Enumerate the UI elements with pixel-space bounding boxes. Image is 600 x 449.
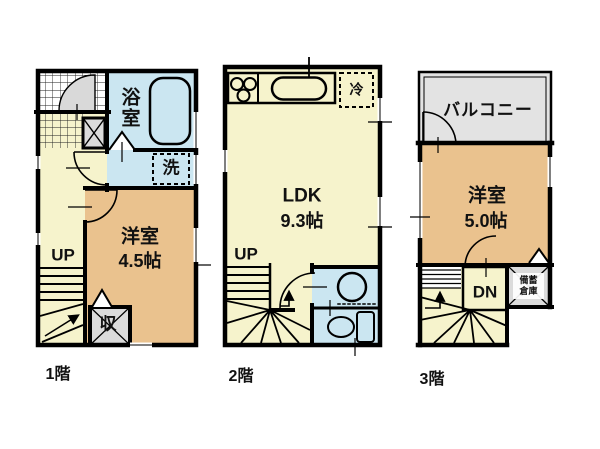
toilet-area [312, 308, 380, 345]
ldk-label: LDK [282, 187, 321, 208]
bedroom3-size-label: 5.0帖 [464, 212, 507, 232]
bedroom1-size-label: 4.5帖 [118, 252, 161, 272]
stairs-up-label-floor2: UP [234, 246, 258, 265]
storage-label: 備蓄 倉庫 [519, 275, 537, 297]
storage-label-line2: 倉庫 [519, 286, 537, 296]
ldk-size-label: 9.3帖 [280, 212, 323, 232]
floor2-label: 2階 [229, 368, 254, 386]
floor3-label: 3階 [420, 371, 445, 389]
floor1-label: 1階 [46, 366, 71, 384]
storage-label-line1: 備蓄 [519, 275, 537, 285]
fridge-label: 冷 [350, 82, 364, 97]
laundry-label: 洗 [163, 160, 180, 179]
stairs-up-label-floor1: UP [51, 247, 75, 266]
laundry-area [107, 150, 196, 188]
bedroom1-label: 洋室 [121, 228, 159, 249]
bedroom3-label: 洋室 [468, 187, 506, 208]
stairs-down-label: DN [473, 284, 498, 303]
shoe-cabinet-icon [83, 118, 105, 148]
balcony-label: バルコニー [443, 102, 533, 121]
closet-label: 収 [100, 316, 117, 335]
bath-label: 浴室 [118, 87, 139, 129]
floorplan-image: 浴室 洗 洋室 4.5帖 UP 収 1階 冷 LDK 9.3帖 UP 2階 バル… [0, 0, 600, 449]
